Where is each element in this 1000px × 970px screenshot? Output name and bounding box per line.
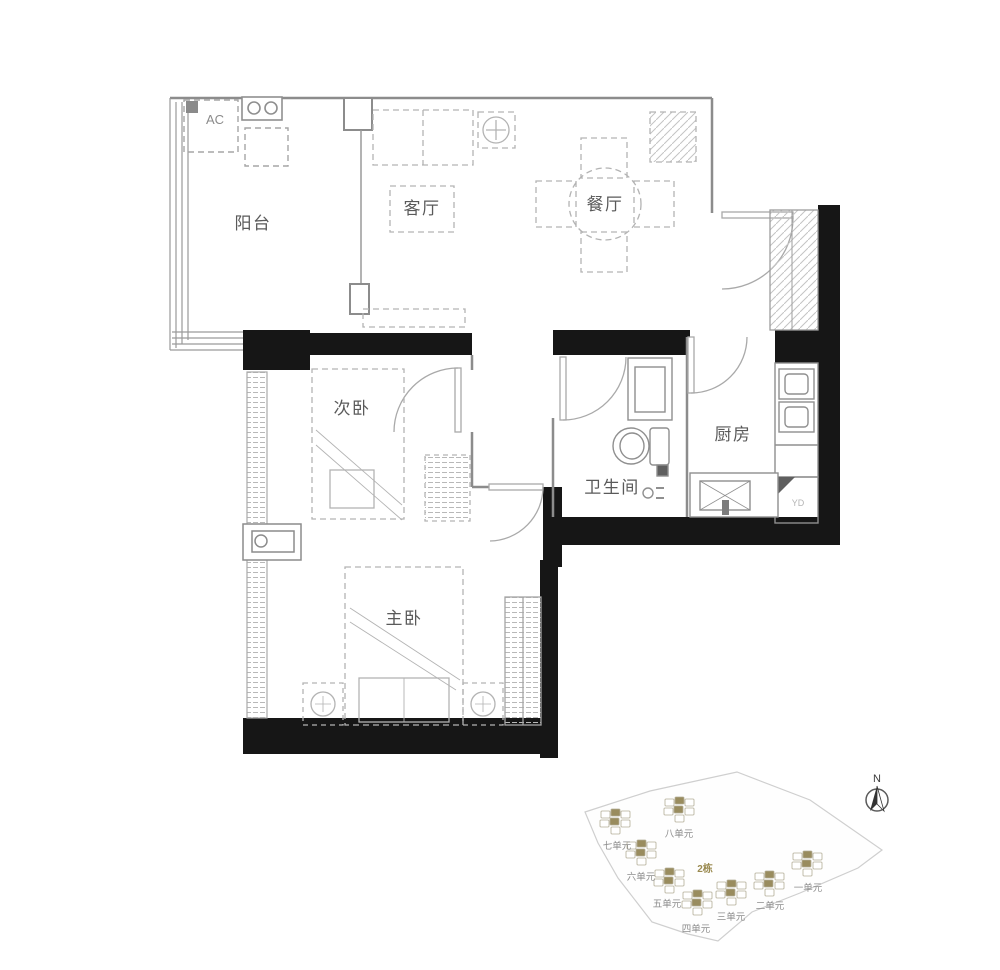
site-plan: 一单元二单元三单元四单元五单元六单元七单元八单元 2栋 N	[585, 772, 888, 941]
vanity-icon	[628, 358, 672, 420]
compass-n-label: N	[873, 773, 881, 785]
room-label-second-bedroom: 次卧	[334, 399, 371, 418]
toilet-icon	[613, 428, 669, 465]
bed-icon	[345, 567, 463, 725]
shaft-hatch	[650, 112, 696, 162]
bed-icon	[312, 369, 404, 520]
site-unit-label: 五单元	[653, 898, 682, 910]
laundry-appliance-icon	[242, 97, 282, 120]
ac-outdoor-unit-icon	[243, 524, 301, 560]
room-label-dining-room: 餐厅	[587, 195, 624, 214]
room-label-bathroom: 卫生间	[584, 478, 640, 497]
floor-plan-drawing: 阳台 客厅 餐厅 次卧 卫生间 厨房 主卧 AC YD 一单元二单元三单元四单元…	[0, 0, 1000, 970]
site-unit-label: 三单元	[717, 911, 746, 923]
room-label-balcony: 阳台	[235, 214, 272, 233]
living-room-furniture	[363, 110, 515, 327]
floor-drain-icon	[643, 465, 668, 498]
floor-plan-page: 阳台 客厅 餐厅 次卧 卫生间 厨房 主卧 AC YD 一单元二单元三单元四单元…	[0, 0, 1000, 970]
site-unit-label: 二单元	[756, 900, 785, 912]
ac-label: AC	[206, 112, 224, 127]
kitchen-sink-icon	[690, 473, 778, 517]
side-table-plant-icon	[478, 112, 515, 148]
room-label-kitchen: 厨房	[715, 425, 752, 444]
site-unit-label: 七单元	[603, 840, 632, 852]
dining-furniture	[536, 112, 696, 272]
master-bedroom-door	[489, 484, 543, 541]
second-bedroom-furniture	[312, 369, 470, 521]
dining-chair-icon	[581, 232, 627, 272]
site-unit-label: 一单元	[794, 882, 823, 894]
building-number-label: 2栋	[697, 862, 713, 875]
bathroom-door	[560, 357, 626, 420]
dining-chair-icon	[536, 181, 576, 227]
service-strip	[243, 372, 301, 718]
room-label-living-room: 客厅	[404, 199, 441, 218]
balcony-fixtures	[184, 97, 288, 166]
entry-closet-icon	[770, 210, 818, 330]
wardrobe-icon	[425, 455, 470, 521]
drain-icon	[186, 101, 198, 113]
site-unit-label: 八单元	[665, 828, 694, 840]
yd-label: YD	[792, 498, 805, 508]
kitchen-door	[688, 337, 747, 393]
compass-north-icon: N	[866, 773, 888, 811]
site-unit-label: 六单元	[627, 871, 656, 883]
tv-cabinet-icon	[363, 309, 465, 327]
dining-chair-icon	[634, 181, 674, 227]
site-unit-label: 四单元	[682, 923, 711, 935]
balcony-divider	[344, 98, 372, 314]
room-label-master-bedroom: 主卧	[386, 609, 423, 628]
sofa-icon	[373, 110, 473, 165]
wardrobe-icon	[505, 597, 541, 725]
master-bedroom-furniture	[303, 567, 541, 725]
